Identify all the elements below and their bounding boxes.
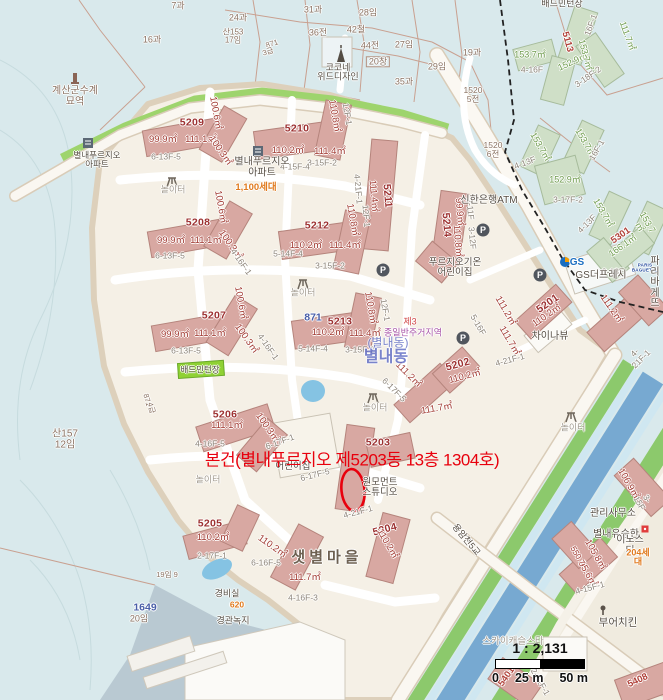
- gs-logo-icon: [560, 257, 570, 267]
- brand-badge-icon: [642, 526, 649, 533]
- badminton-court: [177, 360, 224, 378]
- subject-annotation-text: 본건(별내푸르지오 제5203동 13층 1304호): [205, 446, 499, 471]
- grave-monument-icon: [71, 73, 79, 84]
- scale-ratio-label: 1 : 2,131: [492, 640, 588, 656]
- scale-tick-25: 25 m: [515, 671, 544, 685]
- parking-icon: P: [377, 264, 390, 277]
- parking-icon: P: [534, 269, 547, 282]
- greenbelt-buildings: [513, 6, 663, 283]
- map-terrain-layer: P P P P: [0, 0, 663, 700]
- parking-icon: P: [457, 332, 470, 345]
- scale-bar-graphic: [495, 659, 585, 669]
- scale-bar: 1 : 2,131 0 25 m 50 m: [492, 640, 588, 685]
- apartment-icon: [83, 138, 93, 148]
- parking-icon: P: [477, 224, 490, 237]
- map-canvas[interactable]: P P P P 7과16과24과산153 17임31과36전42철28임44전2…: [0, 0, 663, 700]
- apartment-icon: [253, 146, 263, 156]
- pond: [301, 380, 325, 402]
- scale-tick-50: 50 m: [559, 671, 588, 685]
- svg-text:P: P: [460, 333, 466, 343]
- svg-text:P: P: [537, 270, 543, 280]
- svg-text:P: P: [380, 265, 386, 275]
- svg-text:P: P: [480, 225, 486, 235]
- scale-tick-0: 0: [492, 671, 499, 685]
